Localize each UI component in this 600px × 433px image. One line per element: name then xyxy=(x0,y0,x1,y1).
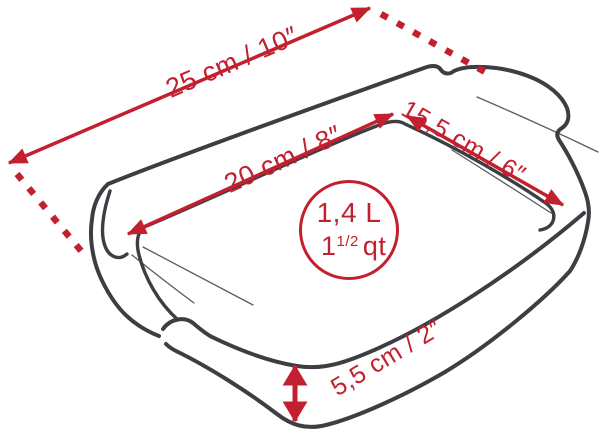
capacity-liters-label: 1,4 L xyxy=(317,197,382,228)
height-label: 5,5 cm / 2″ xyxy=(326,314,447,402)
capacity-quarts-label: 11/2qt xyxy=(321,231,386,261)
outer-length-label: 25 cm / 10″ xyxy=(161,20,302,103)
left-corner-crease-2 xyxy=(132,255,194,303)
quarts-unit: qt xyxy=(363,231,387,261)
diagram-svg: 25 cm / 10″ 20 cm / 8″ 15,5 cm / 6″ 5,5 … xyxy=(0,0,600,433)
inner-width-label: 15,5 cm / 6″ xyxy=(397,95,531,189)
left-handle-inner-line xyxy=(103,191,127,257)
dish-dimension-diagram: 25 cm / 10″ 20 cm / 8″ 15,5 cm / 6″ 5,5 … xyxy=(0,0,600,433)
quarts-fraction-superscript: 1/2 xyxy=(337,233,359,250)
quarts-whole: 1 xyxy=(321,231,337,261)
dimension-labels: 25 cm / 10″ 20 cm / 8″ 15,5 cm / 6″ 5,5 … xyxy=(161,20,530,402)
outer-length-extension-left xyxy=(17,174,87,258)
